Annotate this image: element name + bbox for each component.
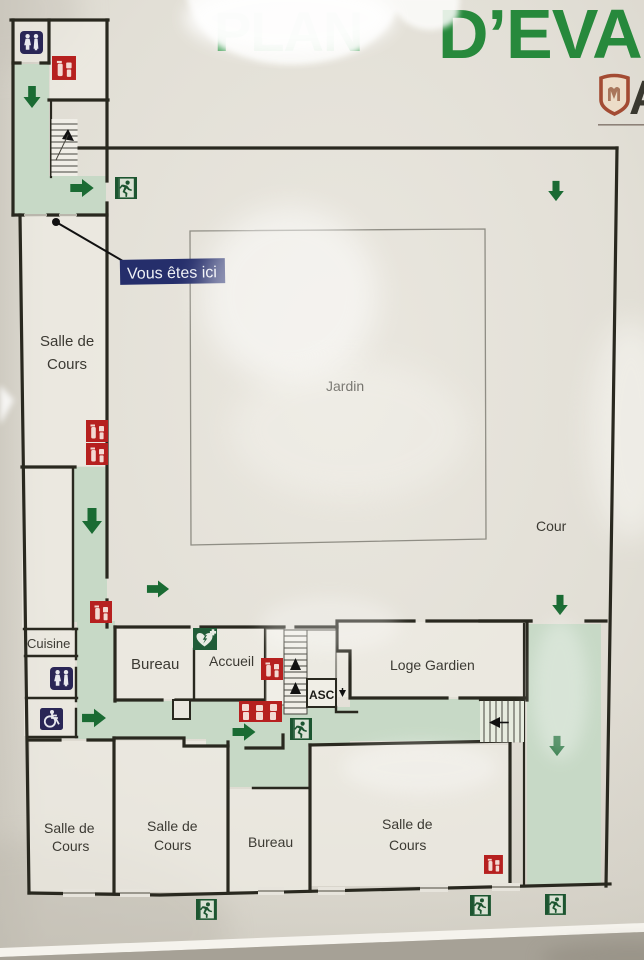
svg-text:Bureau: Bureau: [131, 656, 179, 673]
svg-text:Bureau: Bureau: [248, 834, 293, 850]
svg-text:Accueil: Accueil: [209, 653, 254, 669]
svg-text:Cours: Cours: [47, 356, 87, 373]
svg-text:Salle de: Salle de: [147, 818, 198, 834]
svg-text:Cour: Cour: [536, 518, 567, 534]
svg-text:Cours: Cours: [52, 838, 89, 854]
svg-text:D’EVAC: D’EVAC: [438, 0, 644, 73]
svg-text:Cours: Cours: [154, 837, 191, 853]
svg-text:Salle de: Salle de: [44, 820, 95, 836]
svg-text:Cuisine: Cuisine: [27, 636, 70, 651]
svg-text:ASC: ASC: [309, 688, 335, 702]
svg-text:Salle de: Salle de: [382, 816, 433, 832]
svg-text:Cours: Cours: [389, 837, 426, 853]
svg-text:Loge Gardien: Loge Gardien: [390, 657, 475, 673]
svg-text:A: A: [629, 72, 644, 125]
svg-text:Salle de: Salle de: [40, 333, 94, 350]
